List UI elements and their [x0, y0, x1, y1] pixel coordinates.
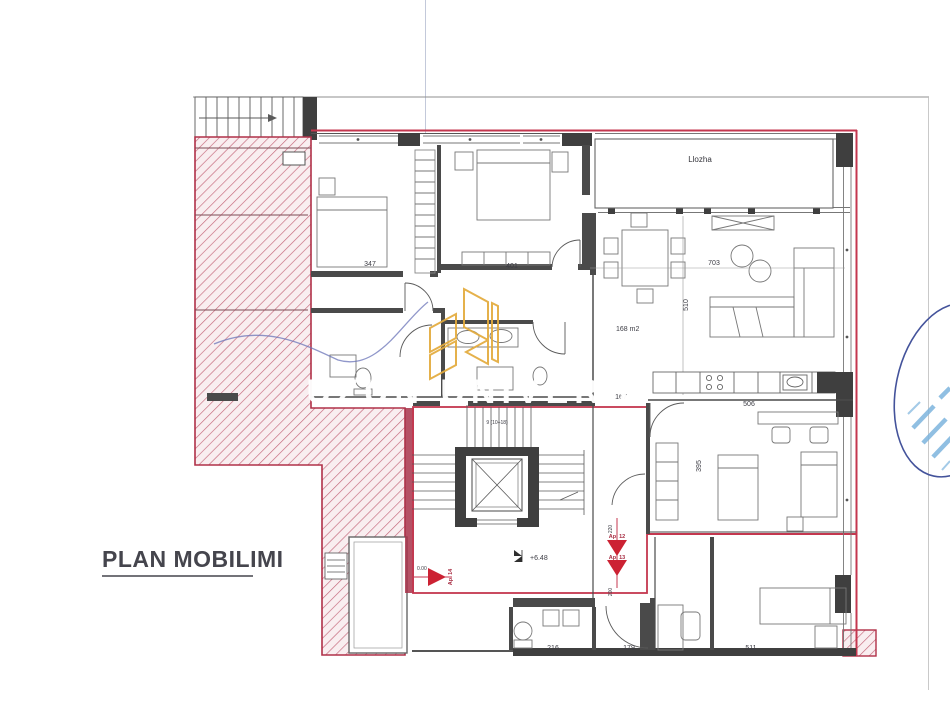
- scanned-floor-plan-page: Llozha: [0, 0, 950, 713]
- page-title: PLAN MOBILIMI: [102, 546, 284, 572]
- loggia-label: Llozha: [688, 155, 712, 164]
- stairwell: [412, 405, 584, 562]
- dim-label-bed2: 401: [506, 263, 518, 270]
- dim-label-corridor: 179: [623, 645, 635, 652]
- loggia-room: Llozha: [595, 139, 833, 208]
- dim-label-200: 200: [608, 588, 614, 597]
- uzun-univers-logo-icon: [430, 289, 498, 379]
- bathroom-small: [514, 610, 579, 648]
- ap12-label: Ap. 12: [609, 534, 626, 540]
- shaft-box: [349, 537, 407, 653]
- level-marker: [514, 550, 522, 562]
- dim-label-bath: 216: [547, 645, 559, 652]
- area-label: 168 m2: [616, 326, 639, 333]
- stamp-ellipse: [879, 292, 950, 487]
- door-arc-study: [650, 403, 684, 437]
- level-label: +6.48: [530, 555, 548, 562]
- dim-label-bed1: 347: [364, 261, 376, 268]
- watermark: UZUN UNIVERS: [306, 289, 633, 411]
- dim-label-bed3: 511: [745, 645, 756, 652]
- door-arc-landing: [612, 474, 645, 505]
- bedroom3-bed: [760, 588, 846, 624]
- elevator: [455, 447, 539, 527]
- door-arc-bath-b: [533, 322, 565, 354]
- bottom-rooms: [658, 588, 846, 650]
- watermark-text: UZUN UNIVERS: [306, 373, 633, 411]
- zero-level-label: 0.00: [417, 566, 427, 572]
- title-block: PLAN MOBILIMI: [102, 546, 284, 576]
- dim-label-220: 220: [608, 525, 614, 534]
- doors: [400, 240, 684, 648]
- ap14-label: Ap. 14: [448, 568, 454, 585]
- fridge-block: [817, 372, 836, 393]
- ap13-label: Ap. 13: [609, 555, 626, 561]
- entry-marker-ap12: [607, 540, 627, 556]
- stairs-note-label: 9 (10÷18): [486, 420, 508, 426]
- dim-label-kitchen: 506: [743, 401, 755, 408]
- dim-label-living-h: 510: [683, 299, 690, 311]
- entry-marker-left: [428, 568, 446, 586]
- door-arc-bath-a: [400, 325, 432, 357]
- terrace-niche: [283, 152, 305, 165]
- stamp: [879, 292, 950, 487]
- living-room: [590, 216, 845, 395]
- dim-label-living-w: 703: [708, 260, 720, 267]
- stamp-text-marks: [913, 388, 950, 457]
- entry-marker-ap13: [607, 560, 627, 576]
- door-arc-bedroom2: [552, 240, 580, 267]
- bedroom-1: [317, 150, 435, 273]
- study-room: [656, 412, 838, 531]
- dining-set: [604, 213, 685, 303]
- dim-label-study: 395: [696, 460, 703, 472]
- exterior-stairs: [195, 97, 317, 140]
- bedroom-2: [455, 150, 568, 265]
- entry-markers: [414, 518, 627, 588]
- terrace-wall-block: [207, 393, 238, 401]
- door-arc-bedroom1: [405, 283, 433, 311]
- kitchen: [653, 372, 836, 393]
- floor-plan-canvas: Llozha: [0, 0, 950, 713]
